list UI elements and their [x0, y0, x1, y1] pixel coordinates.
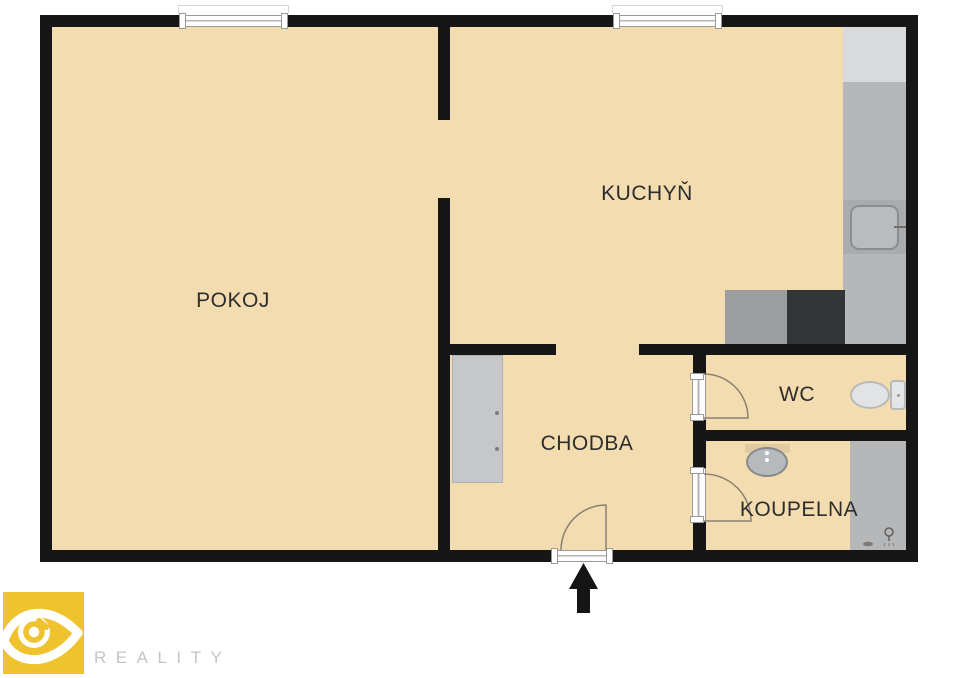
eye-icon: [3, 592, 84, 674]
room-label-pokoj: POKOJ: [196, 289, 270, 313]
brand-wordmark: REALITY: [94, 648, 231, 668]
entrance-arrow-icon: [565, 562, 601, 616]
room-label-wc: WC: [779, 383, 815, 407]
door-swing-arcs: [0, 0, 959, 678]
room-label-chodba: CHODBA: [541, 432, 634, 456]
brand-logo: [3, 592, 84, 674]
room-label-kuchyn: KUCHYŇ: [601, 182, 693, 206]
entrance-door-arc: [561, 505, 606, 550]
floorplan-canvas: POKOJ KUCHYŇ CHODBA WC KOUPELNA REALITY: [0, 0, 959, 678]
wc-door-arc: [704, 374, 748, 418]
room-label-koupelna: KOUPELNA: [740, 498, 858, 522]
